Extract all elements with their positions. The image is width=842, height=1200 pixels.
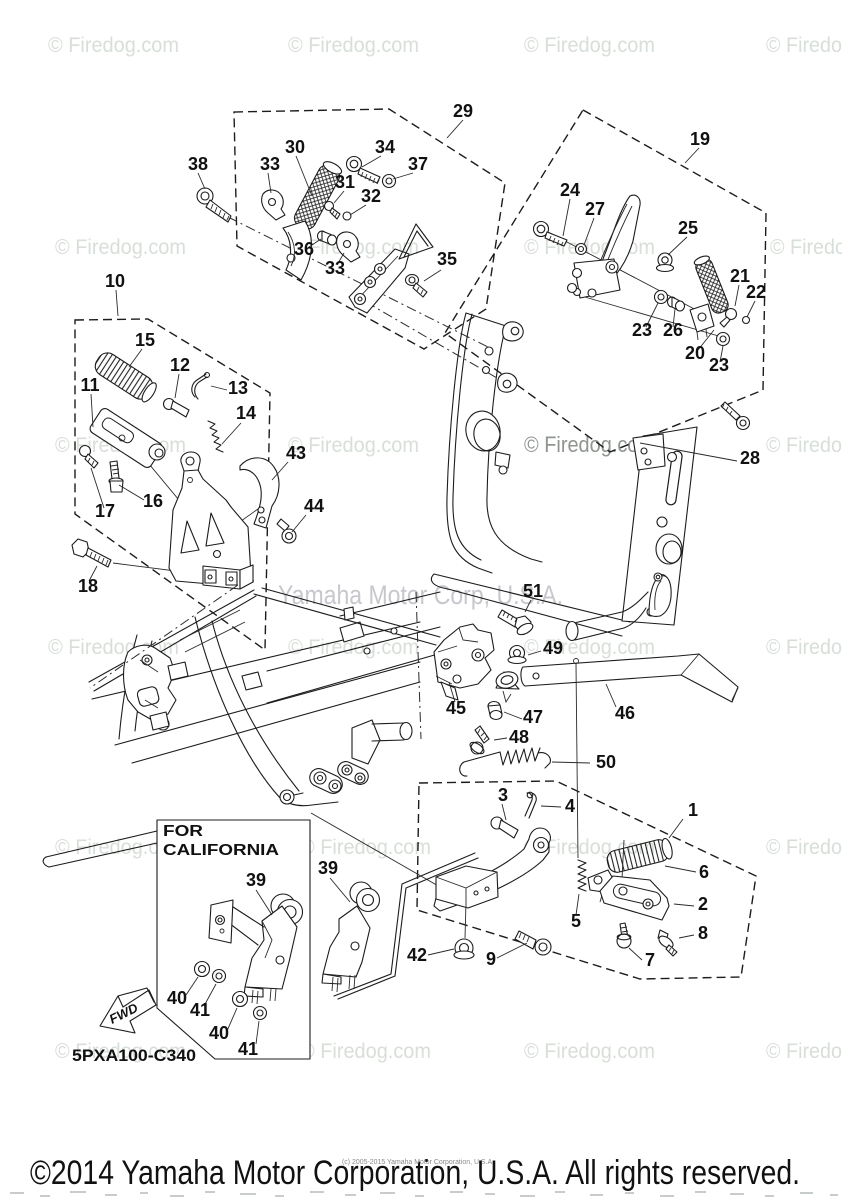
svg-text:39: 39 (318, 858, 338, 878)
svg-text:42: 42 (407, 945, 427, 965)
svg-text:22: 22 (746, 282, 766, 302)
svg-text:15: 15 (135, 330, 155, 350)
svg-text:31: 31 (335, 172, 355, 192)
svg-text:40: 40 (167, 988, 187, 1008)
svg-text:© Firedog.com: © Firedog.com (524, 1040, 655, 1063)
svg-text:© Firedo: © Firedo (766, 434, 842, 457)
svg-text:32: 32 (361, 186, 381, 206)
svg-text:36: 36 (294, 239, 314, 259)
svg-text:46: 46 (615, 703, 635, 723)
svg-text:40: 40 (209, 1023, 229, 1043)
svg-text:18: 18 (78, 576, 98, 596)
svg-text:17: 17 (95, 501, 115, 521)
svg-text:1: 1 (688, 800, 698, 820)
svg-text:25: 25 (678, 218, 698, 238)
svg-text:33: 33 (325, 258, 345, 278)
svg-text:49: 49 (543, 638, 563, 658)
svg-text:48: 48 (509, 727, 529, 747)
svg-text:© Firedog.com: © Firedog.com (288, 434, 419, 457)
svg-text:7: 7 (645, 950, 655, 970)
svg-text:12: 12 (170, 355, 190, 375)
svg-text:4: 4 (565, 796, 575, 816)
svg-text:© Firedo: © Firedo (766, 1040, 842, 1063)
svg-text:13: 13 (228, 378, 248, 398)
svg-text:© Firedo: © Firedo (766, 836, 842, 859)
svg-text:37: 37 (408, 154, 428, 174)
svg-text:24: 24 (560, 180, 580, 200)
svg-text:19: 19 (690, 129, 710, 149)
svg-text:16: 16 (143, 491, 163, 511)
svg-text:14: 14 (236, 403, 256, 423)
svg-text:© Firedog.com: © Firedog.com (288, 34, 419, 57)
svg-text:38: 38 (188, 154, 208, 174)
svg-text:39: 39 (246, 870, 266, 890)
svg-text:26: 26 (663, 320, 683, 340)
svg-text:27: 27 (585, 199, 605, 219)
svg-text:FOR: FOR (163, 823, 204, 840)
svg-text:5: 5 (571, 911, 581, 931)
svg-text:© Firedog.com: © Firedog.com (524, 34, 655, 57)
svg-text:©2014 Yamaha Motor Corporation: ©2014 Yamaha Motor Corporation, U.S.A. A… (30, 1154, 800, 1192)
svg-text:6: 6 (699, 862, 709, 882)
svg-text:45: 45 (446, 698, 466, 718)
svg-text:10: 10 (105, 271, 125, 291)
svg-text:© Firedog.com: © Firedog.com (48, 34, 179, 57)
svg-text:43: 43 (286, 443, 306, 463)
svg-text:30: 30 (285, 137, 305, 157)
svg-text:23: 23 (632, 320, 652, 340)
svg-text:41: 41 (190, 1000, 210, 1020)
svg-text:50: 50 (596, 752, 616, 772)
svg-text:8: 8 (698, 923, 708, 943)
svg-text:20: 20 (685, 343, 705, 363)
svg-text:© Firedog.com: © Firedog.com (300, 836, 431, 859)
svg-text:CALIFORNIA: CALIFORNIA (163, 842, 280, 859)
svg-text:47: 47 (523, 707, 543, 727)
svg-text:5PXA100-C340: 5PXA100-C340 (72, 1046, 196, 1065)
svg-text:© Firedo: © Firedo (770, 236, 842, 259)
svg-text:33: 33 (260, 154, 280, 174)
svg-text:© Firedo: © Firedo (766, 636, 842, 659)
svg-text:© Firedog.com: © Firedog.com (55, 236, 186, 259)
svg-text:44: 44 (304, 496, 324, 516)
svg-text:11: 11 (80, 375, 99, 395)
svg-text:34: 34 (375, 137, 395, 157)
svg-text:2: 2 (698, 894, 708, 914)
svg-text:23: 23 (709, 355, 729, 375)
svg-text:© Firedog.com: © Firedog.com (300, 1040, 431, 1063)
svg-text:9: 9 (486, 949, 496, 969)
svg-text:© Firedog.com: © Firedog.com (524, 236, 655, 259)
svg-text:3: 3 (498, 785, 508, 805)
svg-text:35: 35 (437, 249, 457, 269)
svg-text:29: 29 (453, 101, 473, 121)
svg-text:28: 28 (740, 448, 760, 468)
svg-text:41: 41 (238, 1039, 258, 1059)
svg-text:51: 51 (523, 581, 543, 601)
svg-text:© Firedo: © Firedo (766, 34, 842, 57)
